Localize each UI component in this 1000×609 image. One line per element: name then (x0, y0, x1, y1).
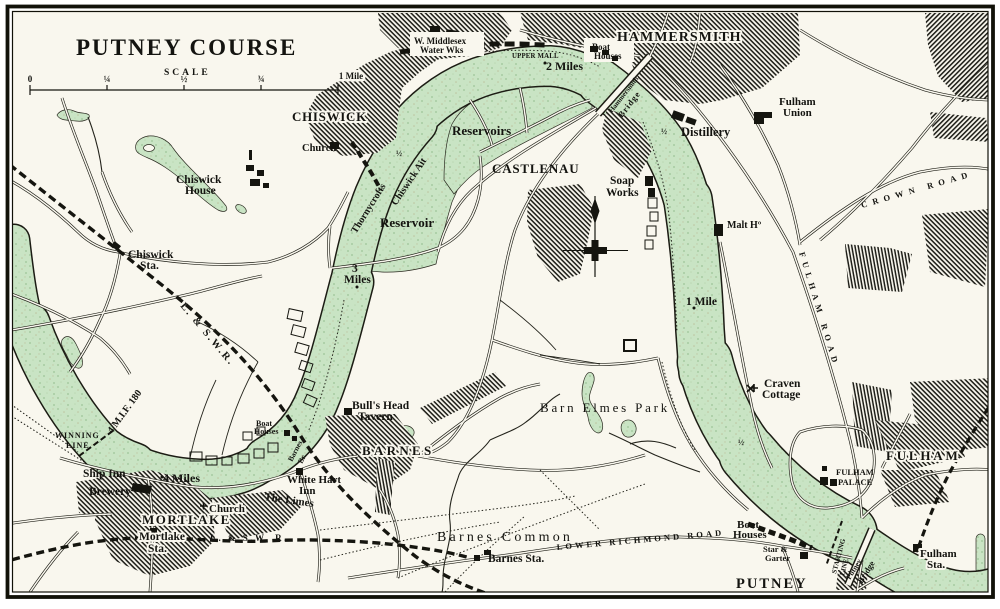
svg-text:Soap: Soap (610, 175, 634, 187)
svg-text:FULHAM: FULHAM (836, 467, 874, 477)
svg-text:Malt Hº: Malt Hº (727, 220, 762, 231)
svg-text:Houses: Houses (594, 51, 622, 61)
svg-text:Reservoirs: Reservoirs (452, 123, 511, 138)
svg-text:¾: ¾ (258, 74, 265, 84)
svg-text:Barn Elmes Park: Barn Elmes Park (540, 400, 670, 415)
svg-text:PUTNEY: PUTNEY (736, 576, 808, 592)
svg-text:PALACE: PALACE (838, 477, 873, 487)
svg-text:CASTLENAU: CASTLENAU (492, 161, 579, 176)
svg-text:HAMMERSMITH: HAMMERSMITH (617, 30, 742, 45)
svg-text:FULHAM: FULHAM (886, 448, 961, 463)
svg-text:Union: Union (783, 107, 812, 119)
svg-text:0: 0 (28, 74, 33, 84)
svg-text:LINE: LINE (66, 441, 90, 450)
svg-text:4 Miles: 4 Miles (163, 471, 200, 485)
svg-text:Distillery: Distillery (681, 125, 731, 139)
svg-text:Water Wks: Water Wks (420, 45, 464, 55)
svg-text:½: ½ (181, 74, 188, 84)
svg-text:2 Miles: 2 Miles (546, 59, 583, 73)
svg-text:¼: ¼ (104, 74, 111, 84)
svg-text:1 Mile: 1 Mile (339, 71, 363, 81)
svg-text:Miles: Miles (344, 274, 371, 286)
svg-text:Mortlake: Mortlake (139, 531, 185, 543)
svg-text:BARNES: BARNES (362, 443, 435, 458)
svg-text:CHISWICK: CHISWICK (292, 109, 367, 124)
svg-text:L. & S.W. R.: L. & S.W. R. (210, 533, 289, 543)
svg-text:Sta.: Sta. (148, 543, 167, 555)
svg-text:WINNING: WINNING (55, 431, 100, 440)
svg-text:½: ½ (661, 127, 667, 136)
svg-text:PUTNEY COURSE: PUTNEY COURSE (76, 35, 297, 60)
svg-text:Barnes Sta.: Barnes Sta. (488, 553, 544, 565)
svg-text:Ship Inn: Ship Inn (83, 468, 126, 480)
svg-text:Church: Church (302, 143, 336, 154)
svg-text:Houses: Houses (733, 529, 767, 541)
svg-text:House: House (185, 185, 216, 197)
svg-text:Reservoir: Reservoir (380, 215, 434, 230)
svg-text:Inn: Inn (299, 485, 316, 497)
svg-text:Cottage: Cottage (762, 389, 800, 401)
svg-text:Brewery: Brewery (89, 486, 131, 498)
svg-text:½: ½ (738, 438, 744, 447)
svg-text:Barnes Common: Barnes Common (437, 530, 573, 545)
svg-text:Church: Church (209, 503, 245, 515)
svg-text:1 Mile: 1 Mile (686, 296, 717, 308)
svg-text:Sta.: Sta. (927, 559, 945, 571)
svg-text:Tavern: Tavern (358, 411, 393, 423)
svg-text:Houses: Houses (254, 427, 278, 436)
svg-text:Sta.: Sta. (140, 260, 159, 272)
svg-text:½: ½ (396, 149, 402, 158)
svg-text:Garter: Garter (765, 553, 790, 563)
svg-text:Works: Works (606, 187, 639, 199)
